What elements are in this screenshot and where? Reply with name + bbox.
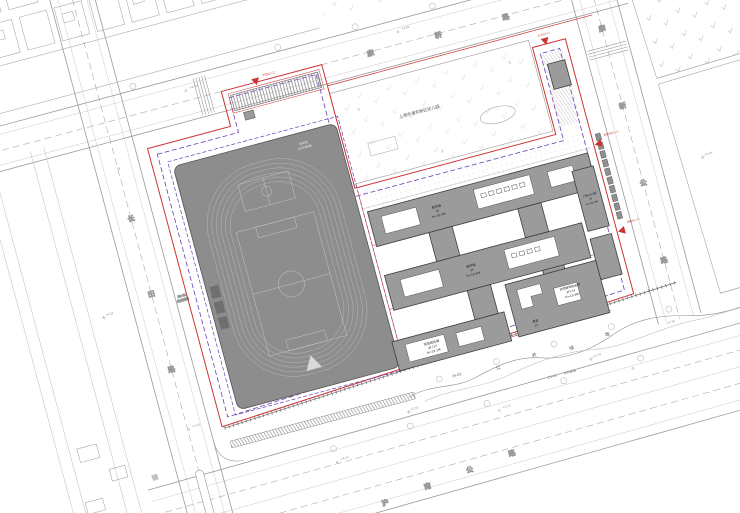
site-plan-drawing: 康 桥 路 长 田 路 20-01 公共绿地: [0, 0, 740, 513]
site-plan-canvas: 康 桥 路 长 田 路 20-01 公共绿地: [0, 0, 740, 513]
